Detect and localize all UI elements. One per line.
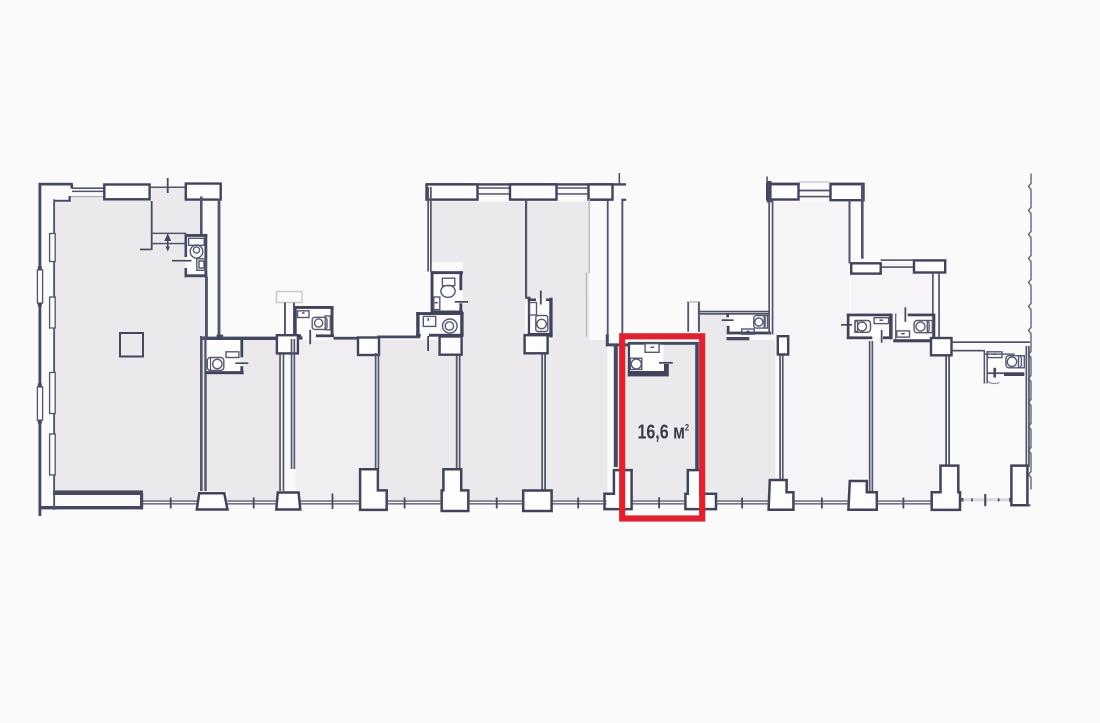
svg-text:16,6 м2: 16,6 м2 bbox=[638, 421, 690, 443]
